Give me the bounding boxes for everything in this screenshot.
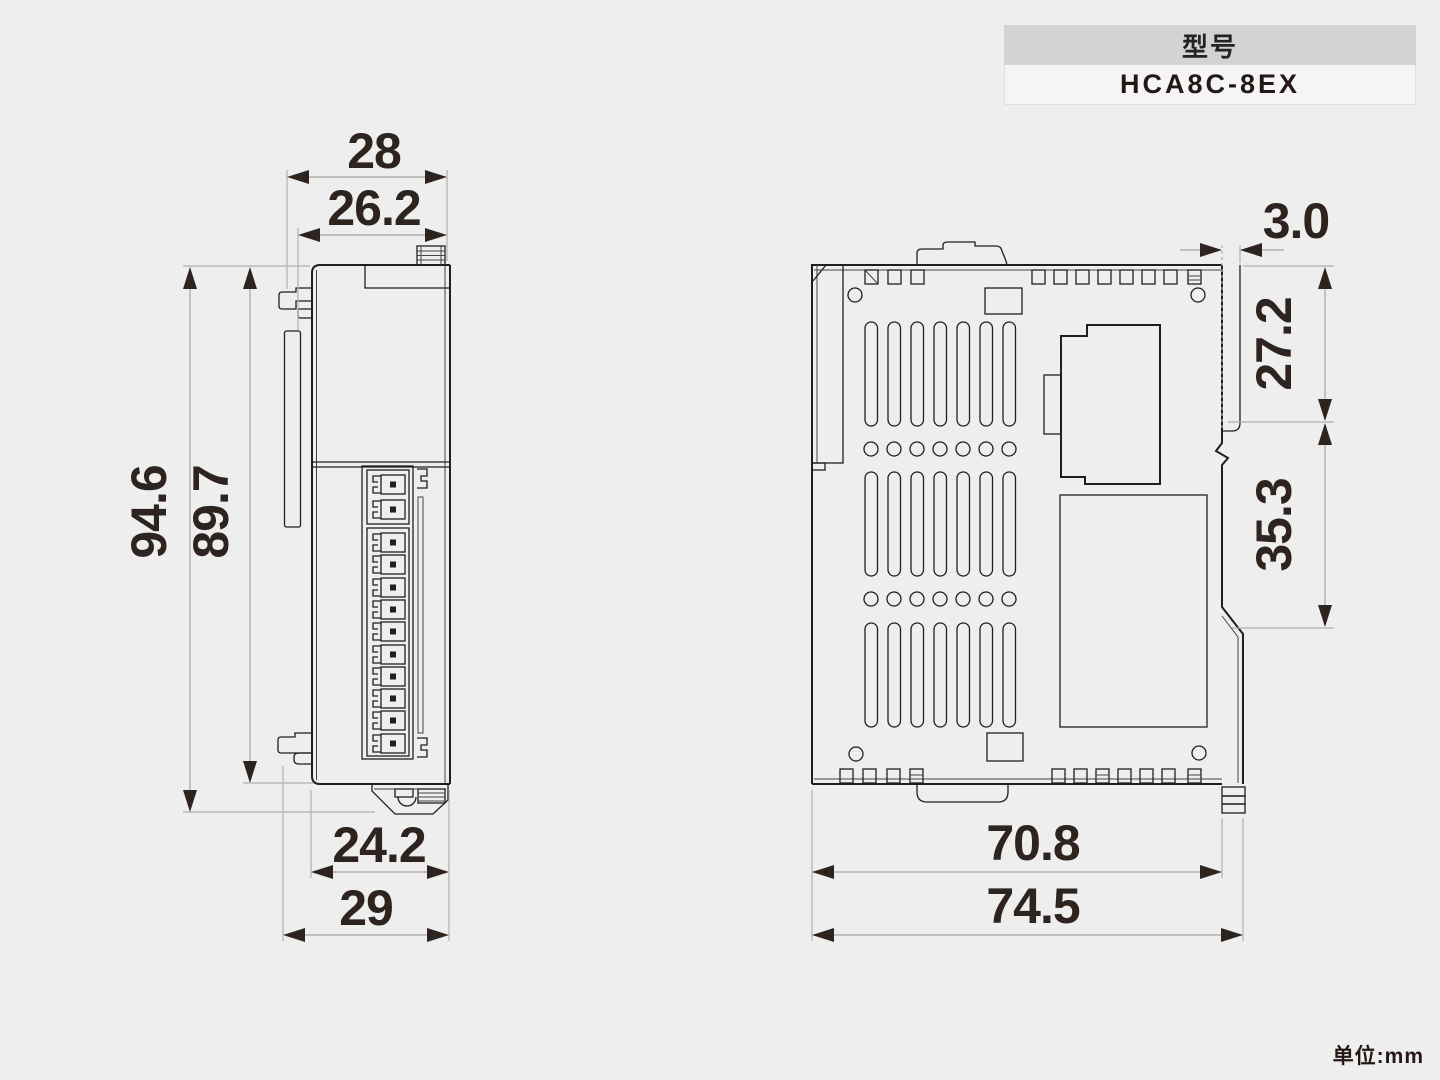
side-teeth-bottom: [840, 769, 1201, 783]
vent-hole-row: [864, 592, 1016, 606]
model-box: 型号 HCA8C-8EX: [1004, 25, 1416, 105]
tooth: [1118, 769, 1131, 783]
front-din-latch: [372, 784, 448, 814]
screw-hole-bottom-left: [849, 747, 863, 761]
technical-drawing: 28 26.2 94.6 89.7: [0, 0, 1440, 1080]
side-slot-opening-top: [985, 288, 1022, 314]
arrow: [425, 170, 447, 184]
model-number: HCA8C-8EX: [1004, 65, 1416, 105]
dim-label: 29: [339, 880, 393, 936]
arrow: [812, 865, 834, 879]
slot-row: [865, 472, 1016, 576]
front-view: 28 26.2 94.6 89.7: [121, 123, 450, 942]
page: 28 26.2 94.6 89.7: [0, 0, 1440, 1080]
arrow: [812, 928, 834, 942]
side-mounting-tab-bottom: [917, 784, 1008, 802]
side-vent-slots: [864, 322, 1016, 727]
front-dim-height-inner: 89.7: [183, 267, 313, 783]
screw-hole-bottom-right: [1192, 746, 1206, 760]
dim-label: 28: [347, 123, 401, 179]
arrow: [1200, 865, 1222, 879]
terminal: [373, 734, 405, 753]
tooth: [1052, 769, 1065, 783]
side-dim-upper-height: 27.2: [1228, 266, 1334, 422]
dim-label: 89.7: [183, 465, 239, 558]
arrow: [311, 865, 333, 879]
dim-label: 74.5: [986, 878, 1080, 934]
front-upper-clip: [279, 288, 312, 318]
terminal: [373, 555, 405, 574]
front-dim-height-outer: 94.6: [121, 266, 375, 812]
tooth: [1188, 270, 1201, 284]
tooth: [1032, 270, 1045, 284]
tooth: [1074, 769, 1087, 783]
tooth: [1054, 270, 1067, 284]
tooth: [1120, 270, 1133, 284]
tooth: [840, 769, 853, 783]
arrow: [427, 865, 449, 879]
arrow: [243, 267, 257, 289]
slot-row: [865, 623, 1016, 727]
tooth: [1164, 270, 1177, 284]
tooth: [1162, 769, 1175, 783]
side-expansion-connector: [1044, 325, 1160, 484]
terminal: [373, 689, 405, 708]
dim-label: 24.2: [332, 817, 425, 873]
terminal: [373, 645, 405, 664]
dim-label: 70.8: [986, 815, 1080, 871]
side-dim-rail-section: 35.3: [1232, 423, 1334, 628]
screw-hole-top-left: [848, 288, 862, 302]
side-slot-opening-bottom: [987, 733, 1023, 761]
front-terminal-strip: [362, 466, 427, 759]
front-lower-clip: [278, 733, 312, 764]
side-view: 3.0 27.2 35.3 70.8: [812, 193, 1334, 942]
vent-hole-row: [864, 442, 1016, 456]
dim-label: 26.2: [327, 180, 420, 236]
terminal: [373, 500, 405, 519]
side-teeth-top: [865, 270, 1201, 284]
tooth: [1098, 270, 1111, 284]
arrow: [427, 928, 449, 942]
front-top-connector: [417, 246, 445, 265]
tooth: [1096, 769, 1109, 783]
front-rail-plate: [285, 331, 301, 527]
arrow: [287, 170, 309, 184]
dim-label: 3.0: [1263, 193, 1330, 249]
tooth: [1142, 270, 1155, 284]
terminal: [373, 667, 405, 686]
terminal: [373, 600, 405, 619]
arrow: [183, 267, 197, 289]
dim-label: 35.3: [1246, 478, 1302, 571]
tooth: [910, 769, 923, 783]
arrow: [1318, 267, 1332, 289]
side-module-plate: [1060, 495, 1207, 727]
arrow: [1318, 423, 1332, 445]
arrow: [1221, 928, 1243, 942]
tooth: [911, 270, 924, 284]
side-mounting-tab-top: [917, 242, 1007, 265]
arrow: [1200, 243, 1222, 257]
arrow: [425, 228, 447, 242]
screw-hole-top-right: [1191, 288, 1205, 302]
arrow: [183, 790, 197, 812]
tooth: [1140, 769, 1153, 783]
arrow: [283, 928, 305, 942]
model-box-header: 型号: [1004, 25, 1416, 65]
arrow: [1318, 605, 1332, 627]
terminal: [373, 475, 405, 494]
slot-row: [865, 322, 1016, 426]
arrow: [298, 228, 320, 242]
terminal: [373, 533, 405, 552]
dim-label: 27.2: [1246, 297, 1302, 390]
side-din-rail-edge: [1216, 265, 1243, 784]
terminal: [373, 622, 405, 641]
tooth: [1076, 270, 1089, 284]
terminal: [373, 578, 405, 597]
arrow: [243, 761, 257, 783]
arrow: [1318, 399, 1332, 421]
arrow: [1240, 243, 1262, 257]
terminal: [373, 711, 405, 730]
tooth: [1188, 769, 1201, 783]
unit-note: 单位:mm: [1333, 1040, 1424, 1070]
tooth: [863, 769, 876, 783]
tooth: [888, 270, 901, 284]
dim-label: 94.6: [121, 465, 177, 558]
tooth: [887, 769, 900, 783]
